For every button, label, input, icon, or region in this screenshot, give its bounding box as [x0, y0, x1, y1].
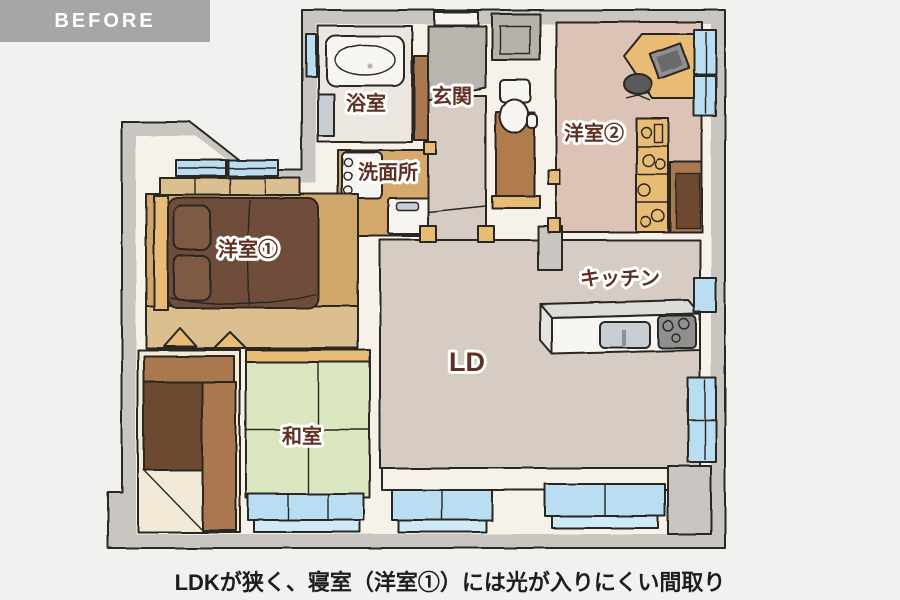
- living-dining-label: LD: [449, 347, 485, 377]
- pillow: [174, 256, 210, 300]
- bathroom-window: [306, 34, 316, 76]
- closet: [138, 350, 240, 532]
- engawa-window: [248, 494, 364, 532]
- bedroom1-label: 洋室①: [218, 237, 278, 261]
- tatami-border: [246, 350, 370, 362]
- room-living-dining: [380, 226, 716, 534]
- floorplan-illustration: 浴室 玄関 洗面所 洋室① 洋室② キッチン LD 和室: [0, 0, 900, 600]
- kitchen-counter: [540, 300, 700, 354]
- window-sill-slats: [160, 178, 300, 195]
- hallway-floor: [428, 96, 486, 242]
- room-bathroom: [306, 26, 412, 142]
- shoe-cabinet: [414, 56, 428, 140]
- page: 浴室 玄関 洗面所 洋室① 洋室② キッチン LD 和室 BEFORE LDKが…: [0, 0, 900, 600]
- stove: [658, 316, 696, 348]
- before-label: BEFORE: [54, 10, 155, 33]
- caption: LDKが狭く、寝室（洋室①）には光が入りにくい間取り: [0, 565, 900, 597]
- entrance-door: [434, 12, 478, 25]
- closet-side: [202, 382, 236, 530]
- room-toilet: [492, 14, 540, 208]
- pillow: [174, 206, 210, 250]
- japanese-room-label: 和室: [282, 424, 322, 448]
- bedroom2-window: [694, 30, 716, 116]
- before-badge: BEFORE: [0, 0, 210, 42]
- bathtub: [326, 36, 404, 86]
- cabinet: [670, 162, 702, 232]
- closet-shelf: [144, 356, 234, 382]
- washroom-label: 洗面所: [358, 161, 418, 184]
- storage-alcove: [492, 14, 540, 60]
- toilet-door-frame: [492, 196, 540, 208]
- bedroom1-windows: [176, 160, 278, 176]
- bookshelf: [636, 118, 668, 232]
- entrance-label: 玄関: [432, 84, 472, 108]
- bathroom-label: 浴室: [346, 91, 386, 115]
- corner-wall: [668, 466, 711, 534]
- kitchen-label: キッチン: [580, 268, 660, 290]
- closet-interior: [144, 382, 202, 470]
- bathroom-sink: [318, 94, 334, 136]
- bedroom2-label: 洋室②: [564, 121, 624, 145]
